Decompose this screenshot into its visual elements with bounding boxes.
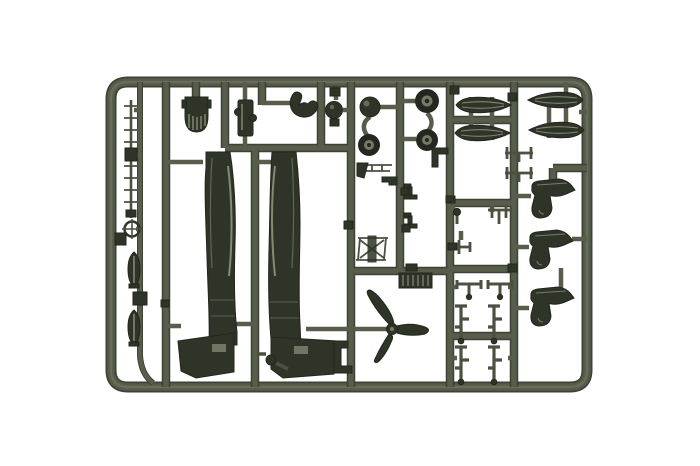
wheel-small (358, 134, 380, 156)
engine-block (235, 100, 257, 136)
radiator-grille (399, 273, 432, 288)
spinner-ball (360, 97, 380, 117)
rack-block (133, 292, 147, 305)
wing-root-right (271, 337, 337, 378)
gate-nub (406, 264, 417, 271)
wheel-top (415, 89, 439, 113)
wing-root-left (178, 333, 234, 378)
sprue-photo (0, 0, 700, 466)
